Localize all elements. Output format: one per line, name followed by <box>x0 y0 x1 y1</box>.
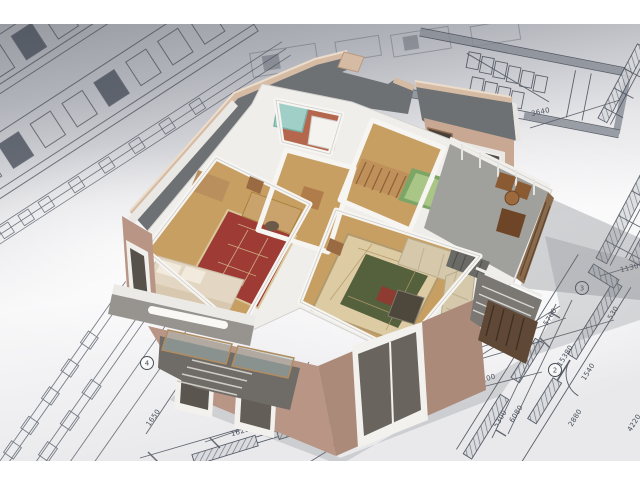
plan-marker: 2 <box>553 367 557 375</box>
bottom-border <box>0 461 640 480</box>
desk-chair <box>265 221 279 231</box>
top-border <box>0 0 640 24</box>
render-scene: 1650 16200 12400 2300 6600 2100 5300 608… <box>0 0 640 480</box>
plan-marker: 4 <box>145 360 150 368</box>
screenshot-canvas: 1650 16200 12400 2300 6600 2100 5300 608… <box>0 0 640 480</box>
